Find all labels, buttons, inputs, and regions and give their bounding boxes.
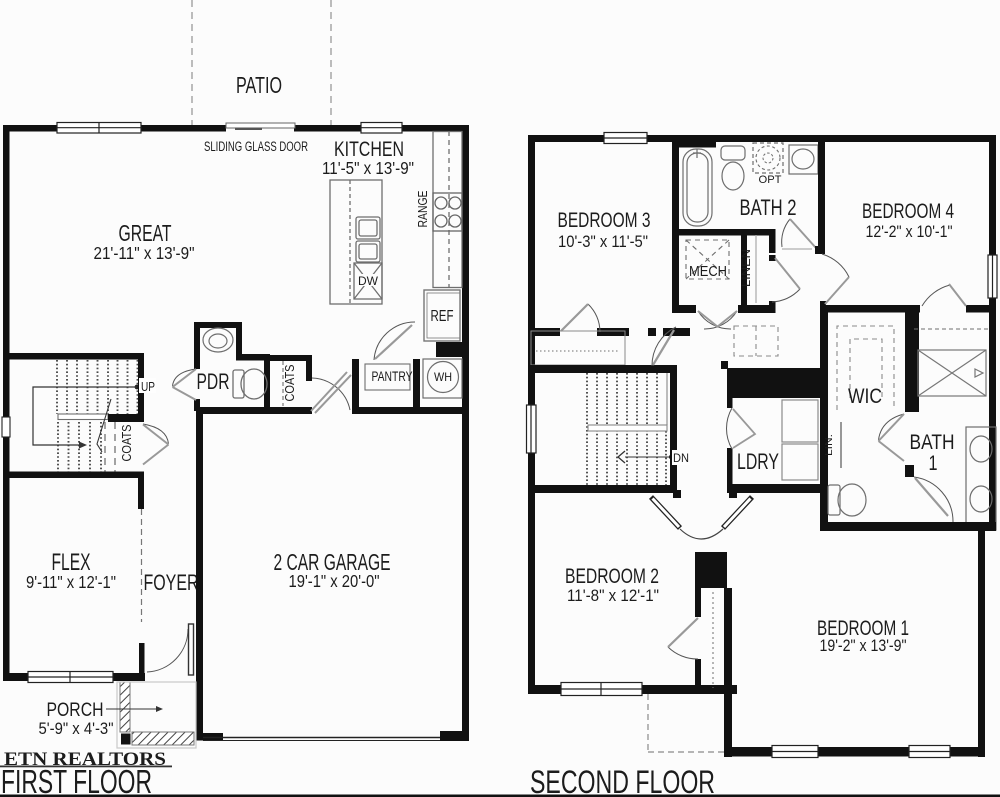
svg-text:11'-5" x 13'-9": 11'-5" x 13'-9"	[322, 158, 414, 178]
svg-text:MECH: MECH	[689, 263, 727, 280]
svg-text:REF: REF	[431, 308, 454, 325]
svg-text:UP: UP	[141, 379, 155, 394]
svg-text:LINEN: LINEN	[739, 249, 753, 287]
svg-text:COATS: COATS	[120, 425, 134, 462]
svg-text:COATS: COATS	[283, 365, 297, 402]
svg-text:SLIDING GLASS DOOR: SLIDING GLASS DOOR	[204, 139, 308, 154]
svg-text:OPT: OPT	[759, 174, 782, 186]
svg-text:1: 1	[929, 452, 938, 475]
svg-text:5'-9" x 4'-3": 5'-9" x 4'-3"	[39, 719, 114, 738]
svg-text:DW: DW	[358, 276, 378, 288]
svg-text:WIC: WIC	[848, 385, 882, 408]
svg-text:BEDROOM 4: BEDROOM 4	[862, 199, 954, 223]
svg-text:LIN.: LIN.	[824, 434, 835, 456]
svg-text:BATH 2: BATH 2	[740, 195, 797, 220]
svg-text:9'-11" x 12'-1": 9'-11" x 12'-1"	[26, 572, 116, 592]
svg-text:FOYER: FOYER	[144, 570, 199, 595]
svg-text:PORCH: PORCH	[47, 700, 104, 721]
svg-text:FIRST FLOOR: FIRST FLOOR	[1, 763, 152, 797]
svg-text:19'-2" x 13'-9": 19'-2" x 13'-9"	[820, 636, 907, 655]
svg-text:LDRY: LDRY	[737, 449, 779, 474]
svg-text:BEDROOM 2: BEDROOM 2	[565, 564, 659, 588]
svg-text:BEDROOM 3: BEDROOM 3	[558, 208, 651, 232]
svg-text:PANTRY: PANTRY	[372, 368, 413, 384]
svg-text:21'-11" x 13'-9": 21'-11" x 13'-9"	[94, 243, 195, 263]
svg-text:19'-1" x 20'-0": 19'-1" x 20'-0"	[289, 571, 380, 591]
svg-text:11'-8" x 12'-1": 11'-8" x 12'-1"	[567, 586, 659, 605]
svg-text:RANGE: RANGE	[415, 190, 430, 227]
svg-text:SECOND FLOOR: SECOND FLOOR	[530, 764, 715, 797]
svg-text:BATH: BATH	[910, 431, 955, 454]
svg-text:10'-3" x 11'-5": 10'-3" x 11'-5"	[558, 232, 648, 251]
svg-text:PDR: PDR	[197, 369, 230, 394]
svg-text:DN: DN	[673, 451, 689, 465]
svg-text:12'-2" x 10'-1": 12'-2" x 10'-1"	[866, 222, 953, 241]
svg-text:PATIO: PATIO	[236, 72, 282, 98]
svg-text:WH: WH	[434, 370, 452, 384]
